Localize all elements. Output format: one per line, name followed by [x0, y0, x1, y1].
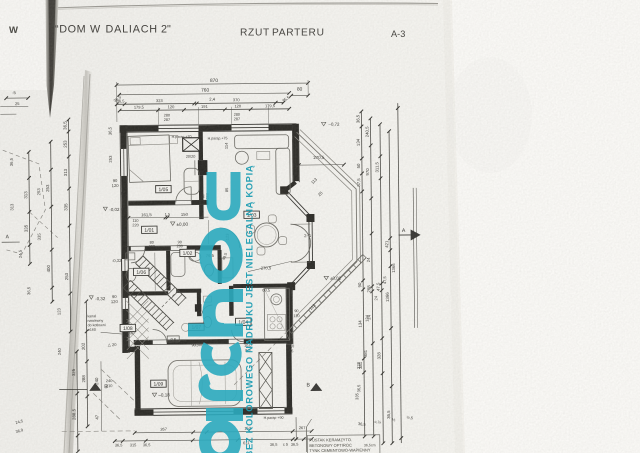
- svg-text:OBIEKT BEZ KOLOROWEGO NADRUKU: OBIEKT BEZ KOLOROWEGO NADRUKU JEST NIELE…: [245, 165, 255, 453]
